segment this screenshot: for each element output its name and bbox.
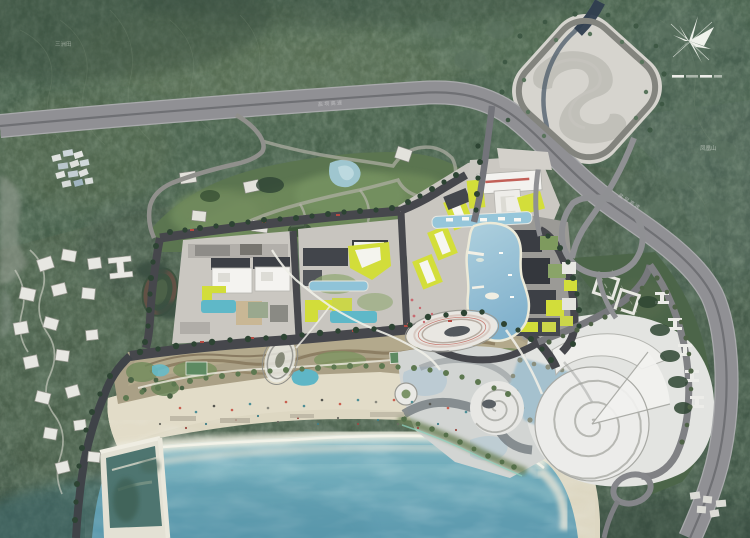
svg-text:凤凰山: 凤凰山 (700, 144, 717, 152)
svg-text:三洲田: 三洲田 (55, 41, 72, 48)
